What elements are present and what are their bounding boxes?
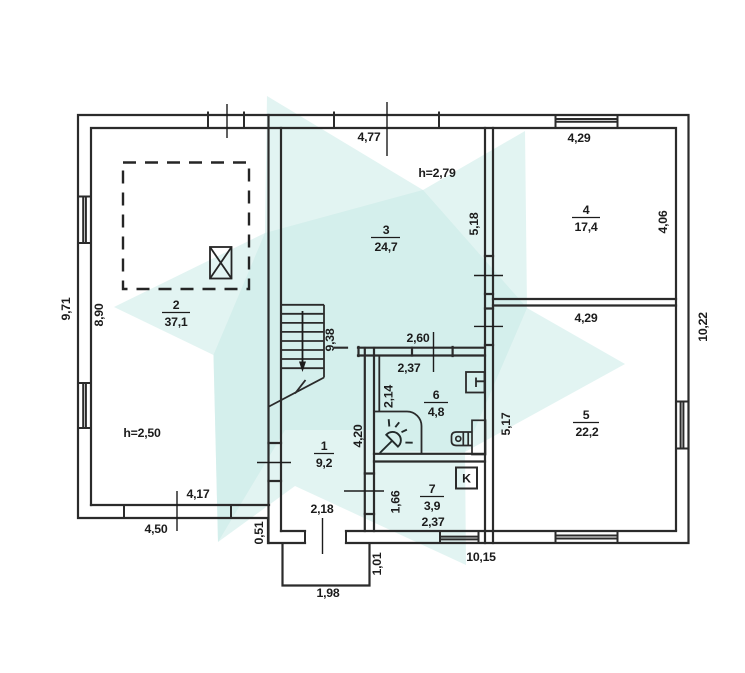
svg-text:1,66: 1,66 [389, 490, 403, 513]
svg-text:2,14: 2,14 [382, 385, 396, 408]
svg-text:17,4: 17,4 [575, 220, 598, 234]
svg-text:h=2,79: h=2,79 [418, 166, 456, 180]
svg-text:4,29: 4,29 [575, 311, 598, 325]
svg-text:2,37: 2,37 [398, 361, 421, 375]
svg-text:4,77: 4,77 [358, 130, 381, 144]
svg-text:4,06: 4,06 [656, 210, 670, 233]
svg-text:5,18: 5,18 [467, 212, 481, 235]
svg-text:9,2: 9,2 [316, 456, 333, 470]
svg-text:5,17: 5,17 [499, 412, 513, 435]
svg-text:4,20: 4,20 [351, 424, 365, 447]
svg-text:2,60: 2,60 [407, 331, 430, 345]
svg-text:1: 1 [321, 439, 328, 453]
svg-text:24,7: 24,7 [375, 240, 398, 254]
svg-text:1,98: 1,98 [317, 586, 340, 600]
svg-text:0,51: 0,51 [252, 521, 266, 544]
svg-text:1,01: 1,01 [370, 552, 384, 575]
svg-text:3: 3 [383, 223, 390, 237]
svg-text:9,38: 9,38 [323, 328, 337, 351]
svg-text:6: 6 [433, 388, 440, 402]
svg-text:2,18: 2,18 [311, 502, 334, 516]
svg-text:5: 5 [583, 408, 590, 422]
svg-text:4: 4 [583, 203, 590, 217]
svg-text:37,1: 37,1 [165, 315, 188, 329]
svg-text:h=2,50: h=2,50 [123, 426, 161, 440]
svg-text:4,17: 4,17 [187, 487, 210, 501]
svg-text:4,29: 4,29 [568, 131, 591, 145]
svg-text:8,90: 8,90 [92, 303, 106, 326]
svg-text:3,9: 3,9 [424, 499, 441, 513]
svg-text:7: 7 [429, 482, 436, 496]
svg-text:10,15: 10,15 [466, 550, 496, 564]
svg-text:2: 2 [173, 298, 180, 312]
svg-text:4,8: 4,8 [428, 405, 445, 419]
svg-text:22,2: 22,2 [576, 425, 599, 439]
svg-text:10,22: 10,22 [696, 312, 710, 342]
svg-text:4,50: 4,50 [145, 522, 168, 536]
svg-text:9,71: 9,71 [59, 297, 73, 320]
svg-text:2,37: 2,37 [422, 515, 445, 529]
svg-text:K: K [462, 472, 471, 486]
